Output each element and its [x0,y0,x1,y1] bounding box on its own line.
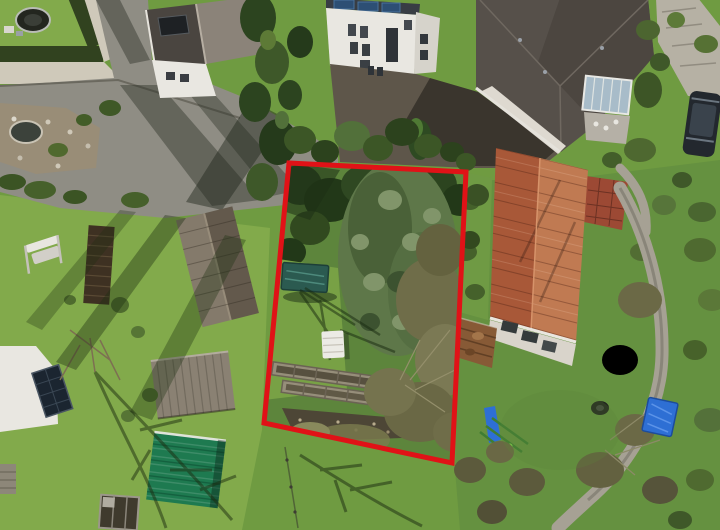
aerial-photo [0,0,720,530]
planting-table [99,495,139,530]
roof-skylight [158,15,189,36]
conservatory [582,76,631,115]
blue-tarp [642,397,678,436]
aerial-photo-canvas [0,0,720,530]
terrace [584,112,630,144]
plot-interior [260,140,478,470]
garden-bench [0,464,16,494]
white-bench [321,330,349,360]
